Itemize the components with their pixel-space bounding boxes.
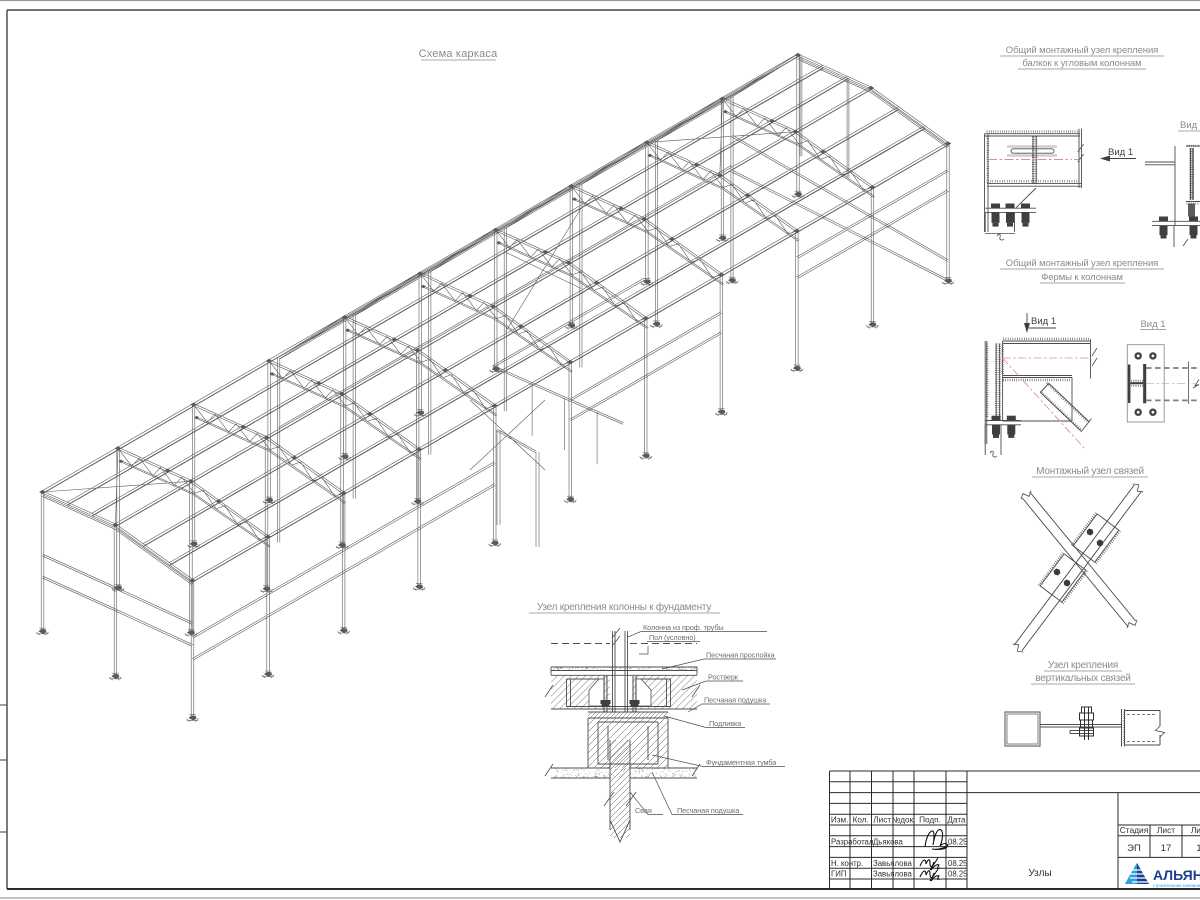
svg-text:Лист: Лист: [873, 816, 891, 825]
svg-text:вертикальных связей: вертикальных связей: [1035, 673, 1130, 684]
svg-text:Лист: Лист: [1157, 825, 1175, 835]
svg-text:Ростверк: Ростверк: [708, 673, 739, 682]
svg-text:Кол.: Кол.: [853, 816, 869, 825]
svg-text:№док.: №док.: [892, 816, 916, 825]
svg-text:Завьялова: Завьялова: [873, 859, 912, 868]
svg-text:Стадия: Стадия: [1120, 825, 1149, 835]
svg-text:Дата: Дата: [947, 816, 966, 825]
svg-text:Подп.: Подп.: [919, 816, 941, 825]
svg-text:Узел крепления: Узел крепления: [1048, 660, 1118, 671]
svg-text:АЛЬЯНС: АЛЬЯНС: [1153, 867, 1200, 883]
svg-text:Пол (условно): Пол (условно): [649, 633, 696, 642]
svg-text:Песчаная подушка: Песчаная подушка: [677, 806, 740, 815]
svg-text:Завьялова: Завьялова: [873, 870, 912, 879]
svg-text:Свая: Свая: [635, 806, 652, 815]
svg-text:Общий монтажный узел крепления: Общий монтажный узел крепления: [1006, 45, 1158, 56]
svg-text:Н. контр.: Н. контр.: [831, 859, 863, 868]
svg-text:Общий монтажный узел крепления: Общий монтажный узел крепления: [1006, 258, 1158, 269]
svg-text:17: 17: [1161, 843, 1172, 854]
svg-text:Узел крепления колонны к фунда: Узел крепления колонны к фундаменту: [537, 601, 711, 613]
svg-text:1: 1: [1196, 843, 1200, 854]
svg-text:Изм.: Изм.: [831, 816, 849, 825]
svg-text:Песчаная подушка: Песчаная подушка: [704, 696, 767, 705]
svg-text:Вид 1: Вид 1: [1108, 147, 1133, 158]
svg-text:Песчаная прослойка: Песчаная прослойка: [706, 651, 776, 660]
svg-text:08.25: 08.25: [948, 859, 968, 868]
svg-text:Вид 1: Вид 1: [1140, 319, 1165, 330]
svg-text:08.25: 08.25: [948, 870, 968, 879]
svg-text:Монтажный узел связей: Монтажный узел связей: [1036, 466, 1144, 477]
svg-text:ЭП: ЭП: [1127, 843, 1141, 854]
svg-text:балкок к угловым колоннам: балкок к угловым колоннам: [1022, 58, 1141, 69]
svg-text:Фундаментная тумба: Фундаментная тумба: [706, 758, 777, 767]
svg-text:Узлы: Узлы: [1028, 868, 1051, 879]
svg-text:строительная компания: строительная компания: [1153, 883, 1200, 888]
svg-text:Вид 1: Вид 1: [1031, 316, 1056, 327]
svg-text:Дьякова: Дьякова: [873, 837, 903, 846]
svg-text:08.25: 08.25: [948, 837, 968, 846]
svg-text:ГИП: ГИП: [831, 870, 846, 879]
svg-text:Колонна из проф. трубы: Колонна из проф. трубы: [643, 623, 724, 632]
svg-text:Фермы к колоннам: Фермы к колоннам: [1041, 272, 1123, 283]
svg-text:Разработал: Разработал: [831, 837, 874, 846]
svg-text:Схема каркаса: Схема каркаса: [419, 48, 499, 60]
svg-text:Лис: Лис: [1191, 825, 1200, 835]
svg-text:Подливка: Подливка: [709, 719, 742, 728]
svg-text:Вид 1: Вид 1: [1180, 120, 1200, 131]
